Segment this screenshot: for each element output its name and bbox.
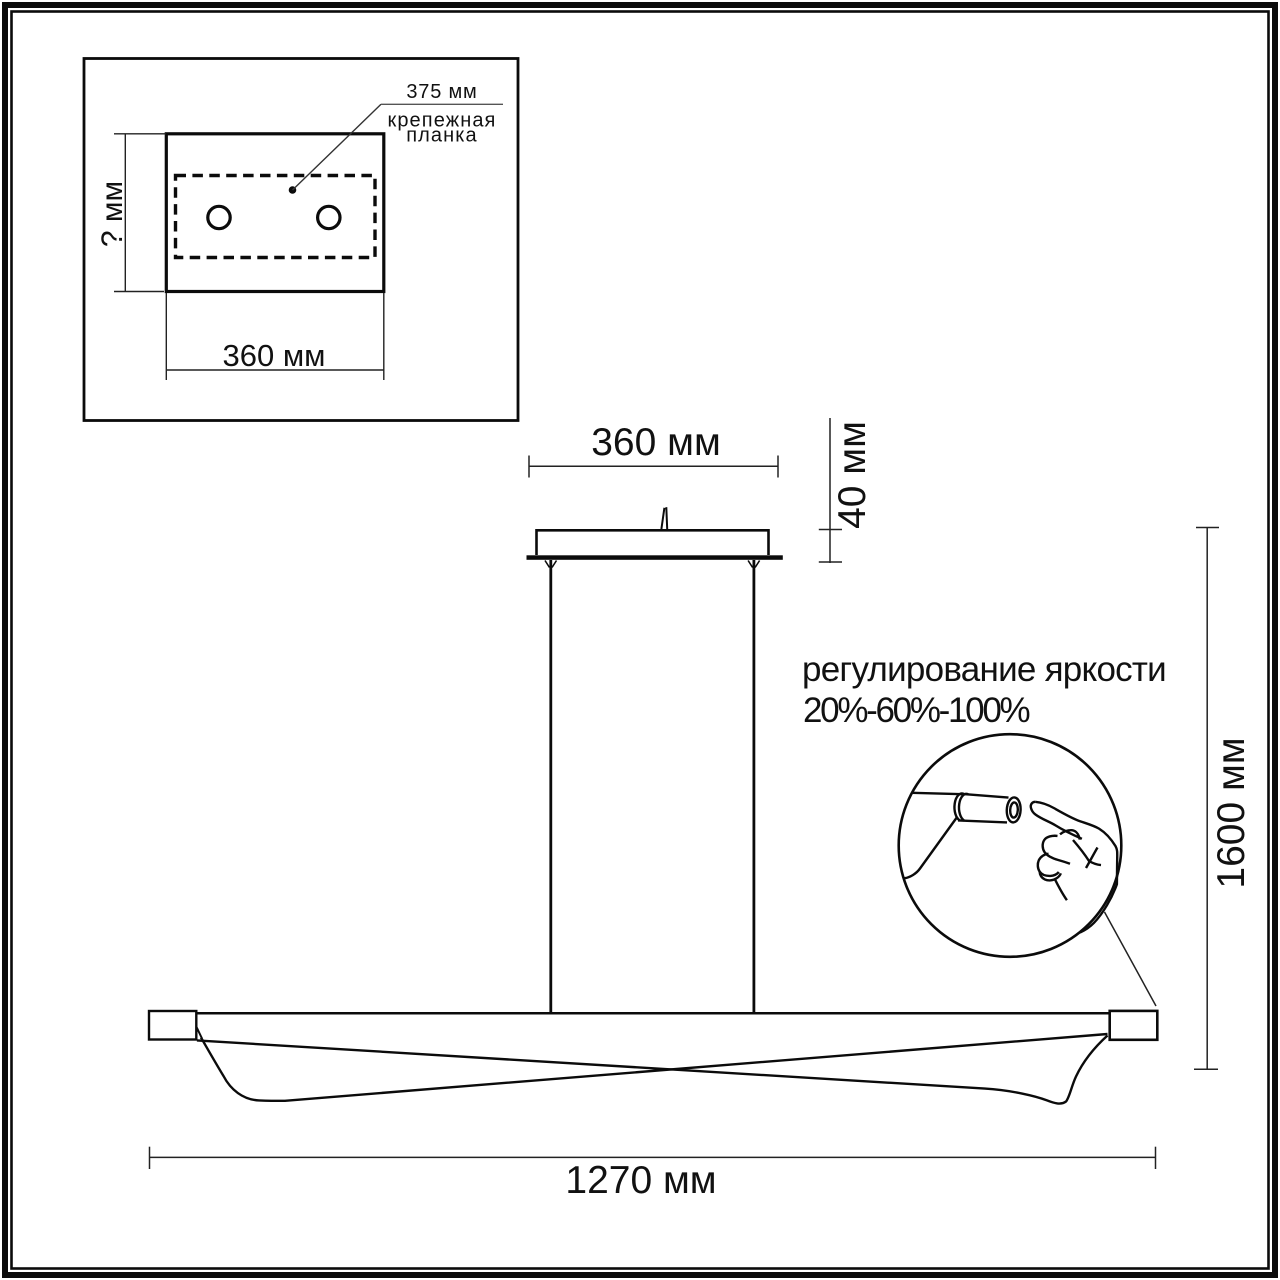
svg-text:20%-60%-100%: 20%-60%-100% (803, 691, 1030, 730)
svg-text:1270 мм: 1270 мм (565, 1159, 716, 1202)
svg-text:375 мм: 375 мм (406, 81, 477, 103)
svg-text:40 мм: 40 мм (831, 421, 874, 529)
svg-text:1600 мм: 1600 мм (1210, 737, 1253, 888)
svg-text:? мм: ? мм (96, 181, 129, 247)
svg-text:360 мм: 360 мм (591, 421, 721, 464)
svg-text:360 мм: 360 мм (223, 338, 326, 373)
svg-text:регулирование яркости: регулирование яркости (802, 650, 1166, 689)
svg-text:планка: планка (406, 125, 478, 147)
